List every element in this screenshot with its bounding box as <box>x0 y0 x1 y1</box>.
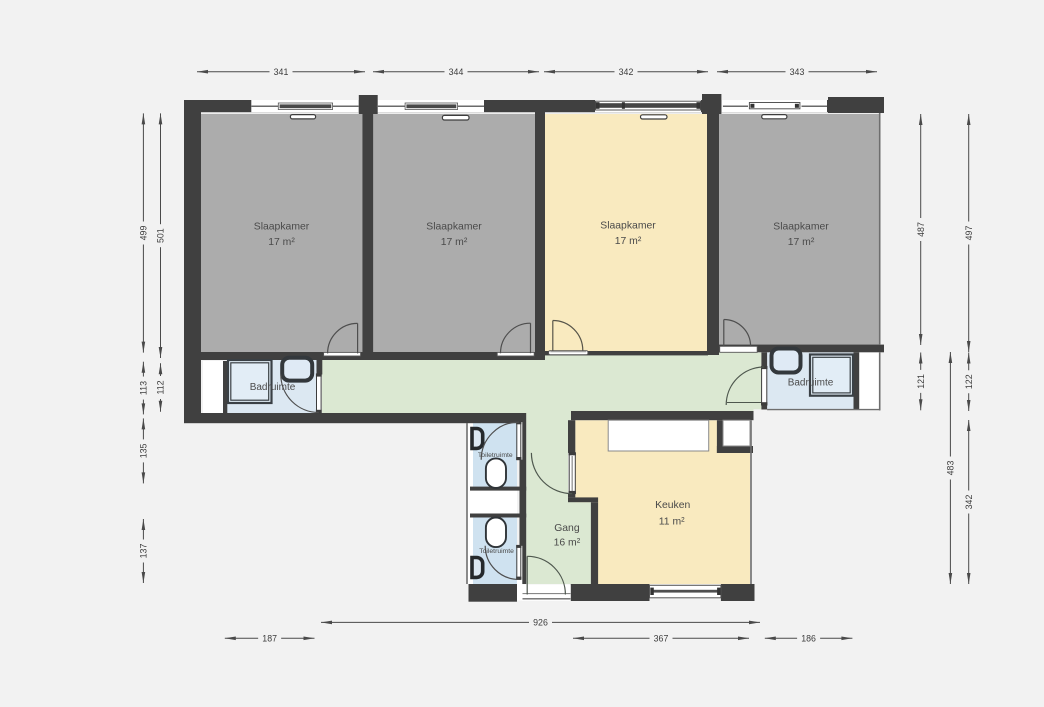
svg-text:17 m²: 17 m² <box>615 236 642 247</box>
svg-text:17 m²: 17 m² <box>788 237 815 248</box>
svg-text:16 m²: 16 m² <box>554 538 581 549</box>
svg-text:342: 342 <box>964 495 974 510</box>
svg-text:Toiletruimte: Toiletruimte <box>478 452 513 459</box>
svg-text:Badruimte: Badruimte <box>788 378 834 389</box>
svg-text:Badruimte: Badruimte <box>250 382 296 393</box>
svg-text:487: 487 <box>916 222 926 237</box>
svg-text:341: 341 <box>274 67 289 77</box>
svg-text:121: 121 <box>916 374 926 389</box>
svg-text:113: 113 <box>139 381 149 395</box>
svg-text:344: 344 <box>449 67 464 77</box>
svg-text:Gang: Gang <box>554 523 580 534</box>
svg-text:187: 187 <box>262 634 277 644</box>
svg-text:112: 112 <box>156 380 166 394</box>
svg-text:367: 367 <box>654 634 669 644</box>
svg-text:501: 501 <box>156 228 166 243</box>
svg-text:17 m²: 17 m² <box>268 237 295 248</box>
svg-text:343: 343 <box>790 67 805 77</box>
svg-text:926: 926 <box>533 618 548 628</box>
svg-text:483: 483 <box>946 461 956 476</box>
svg-text:Slaapkamer: Slaapkamer <box>773 222 829 233</box>
svg-text:Keuken: Keuken <box>655 500 690 511</box>
svg-text:Slaapkamer: Slaapkamer <box>254 222 310 233</box>
svg-text:Toiletruimte: Toiletruimte <box>479 548 514 555</box>
svg-text:499: 499 <box>139 226 149 241</box>
svg-text:342: 342 <box>619 67 634 77</box>
svg-text:186: 186 <box>801 634 816 644</box>
svg-text:122: 122 <box>964 374 974 389</box>
svg-text:137: 137 <box>139 544 149 559</box>
svg-text:Slaapkamer: Slaapkamer <box>426 222 482 233</box>
svg-text:17 m²: 17 m² <box>441 237 468 248</box>
svg-text:497: 497 <box>964 226 974 241</box>
svg-text:11 m²: 11 m² <box>659 517 685 528</box>
svg-text:Slaapkamer: Slaapkamer <box>600 221 656 232</box>
svg-text:135: 135 <box>139 443 149 458</box>
